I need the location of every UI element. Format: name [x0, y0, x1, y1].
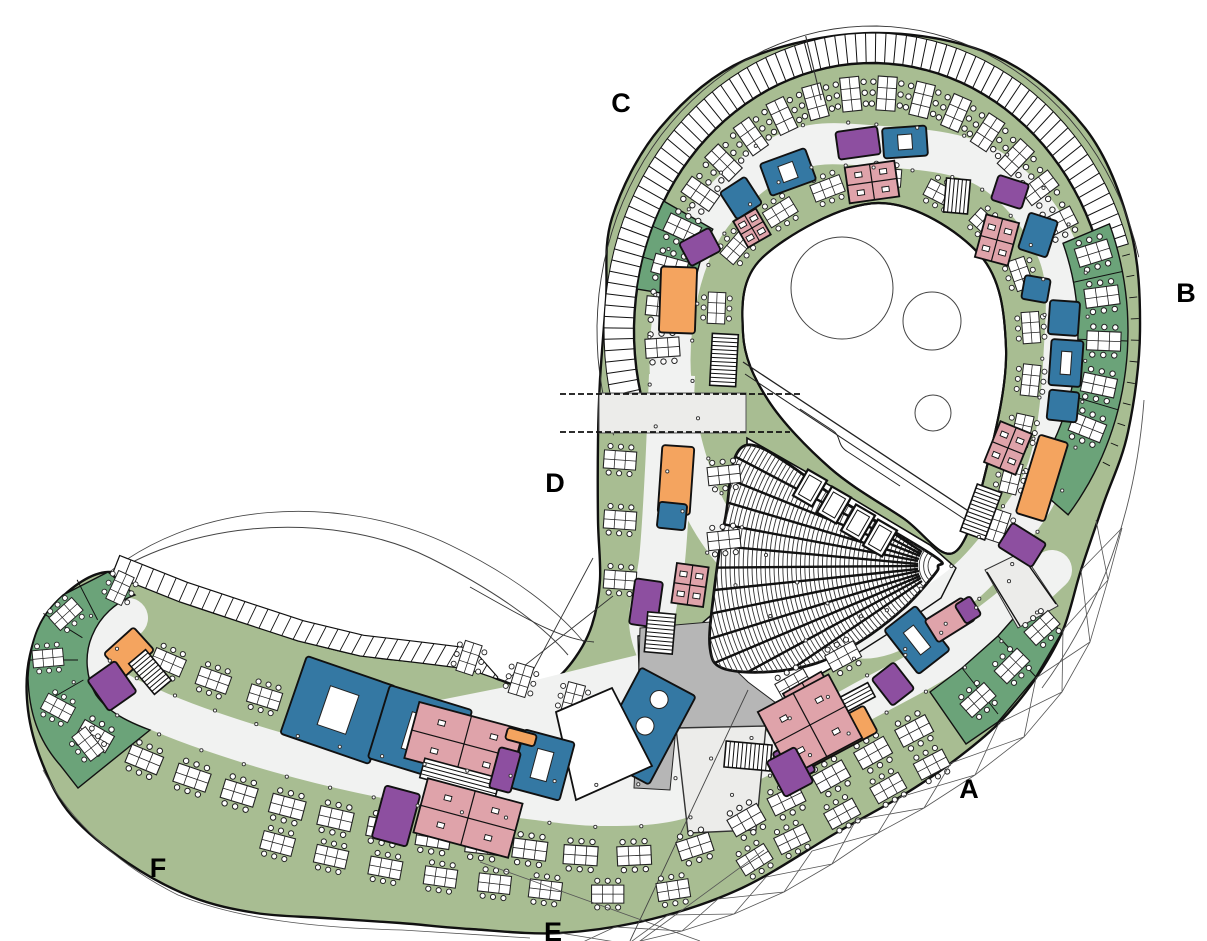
svg-text:B: B: [1176, 278, 1196, 308]
svg-text:A: A: [959, 774, 979, 804]
svg-text:D: D: [545, 468, 565, 498]
svg-text:C: C: [611, 88, 631, 118]
svg-text:F: F: [150, 853, 167, 883]
svg-text:E: E: [544, 917, 562, 941]
